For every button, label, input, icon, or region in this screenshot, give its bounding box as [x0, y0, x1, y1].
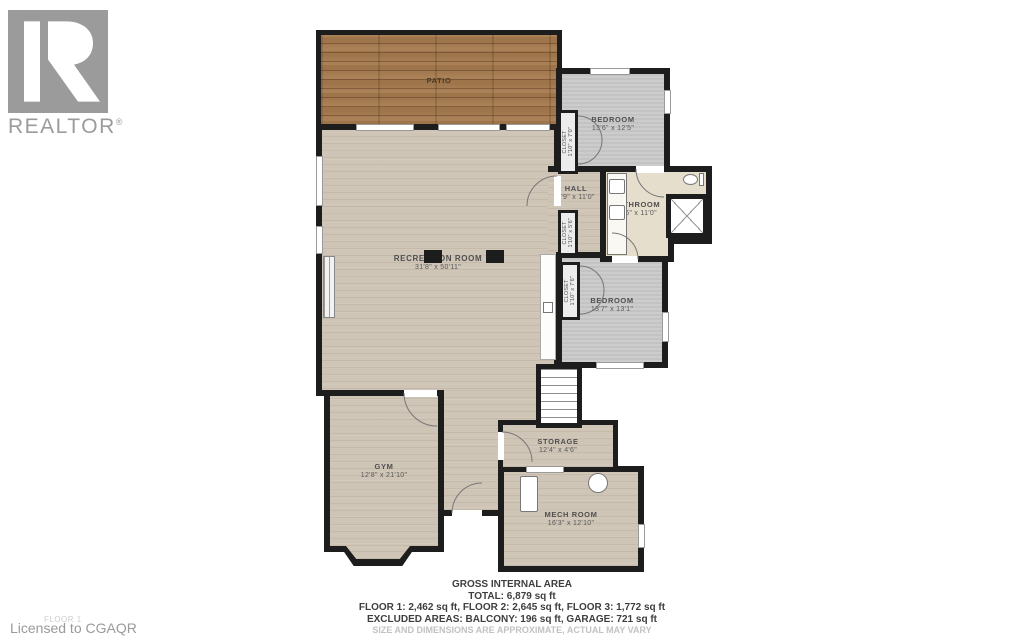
room-dims: 13'7" x 13'1" [590, 305, 633, 314]
sink-icon [609, 179, 625, 194]
window [316, 156, 323, 206]
room-dims: 31'8" x 50'11" [394, 263, 482, 272]
window [506, 124, 550, 131]
window [638, 524, 645, 548]
room-name: STORAGE [537, 437, 578, 446]
floorplan-page: { "logo": { "brand": "REALTOR", "mark": … [0, 0, 1024, 639]
room-name: MECH ROOM [545, 510, 598, 519]
closet-label: CLOSET 1'10" x 7'6" [564, 276, 576, 306]
room-label: BEDROOM 13'6" x 12'5" [591, 115, 634, 133]
wall-segment [316, 390, 330, 396]
closet-top: CLOSET 1'10" x 7'0" [558, 110, 578, 174]
room-label: BEDROOM 13'7" x 13'1" [590, 296, 633, 314]
area-summary-disclaimer: SIZE AND DIMENSIONS ARE APPROXIMATE, ACT… [0, 625, 1024, 637]
room-dims: 1'10" x 7'6" [570, 276, 576, 306]
room-name: PATIO [427, 76, 452, 85]
bar-sink-icon [543, 302, 553, 313]
floorplan-canvas: REALTOR® PATIO RECREATION ROOM 31'8" x 5… [0, 0, 1024, 639]
water-heater-icon [588, 473, 608, 493]
window [596, 362, 644, 369]
sink-icon [609, 205, 625, 220]
room-dims: 12'8" x 21'10" [361, 471, 407, 480]
realtor-logo-icon [8, 10, 108, 113]
closet-label: CLOSET 1'10" x 7'0" [562, 127, 574, 157]
window [316, 226, 323, 254]
window [438, 124, 500, 131]
closet-label: CLOSET 1'10" x 5'6" [562, 218, 574, 248]
room-name: BEDROOM [590, 296, 633, 305]
toilet-icon [683, 174, 698, 185]
room-label: MECH ROOM 16'3" x 12'10" [545, 510, 598, 528]
structural-post [424, 250, 442, 263]
gym-bay-floor [346, 546, 410, 559]
area-summary-floors: FLOOR 1: 2,462 sq ft, FLOOR 2: 2,645 sq … [0, 602, 1024, 614]
closet-hall: CLOSET 1'10" x 5'6" [558, 210, 578, 256]
room-label: PATIO [427, 76, 452, 85]
area-summary-total: TOTAL: 6,879 sq ft [0, 591, 1024, 603]
door-gap [404, 390, 437, 397]
room-dims: 13'6" x 12'5" [591, 124, 634, 133]
room-dims: 1'10" x 5'6" [568, 218, 574, 248]
realtor-wordmark: REALTOR® [8, 115, 128, 139]
door-gap [636, 166, 664, 173]
room-name: HALL [557, 184, 595, 193]
room-name: GYM [361, 462, 407, 471]
area-summary: GROSS INTERNAL AREA TOTAL: 6,879 sq ft F… [0, 579, 1024, 637]
window [356, 124, 414, 131]
room-gym: GYM 12'8" x 21'10" [324, 390, 444, 552]
stair-treads [541, 369, 577, 423]
window [664, 90, 671, 114]
door-gap [498, 432, 504, 460]
room-dims: 5'9" x 11'0" [557, 193, 595, 202]
licensed-to-watermark: Licensed to CGAQR [10, 620, 137, 636]
toilet-tank-icon [699, 173, 704, 186]
realtor-r-icon [8, 10, 108, 113]
realtor-brand-text: REALTOR [8, 115, 116, 138]
room-dims: 16'3" x 12'10" [545, 519, 598, 528]
closet-bedroom-lower: CLOSET 1'10" x 7'6" [560, 262, 580, 320]
room-label: GYM 12'8" x 21'10" [361, 462, 407, 480]
room-dims: 1'10" x 7'0" [568, 127, 574, 157]
shower-icon [666, 194, 708, 238]
area-summary-excluded: EXCLUDED AREAS: BALCONY: 196 sq ft, GARA… [0, 614, 1024, 626]
room-label: STORAGE 12'4" x 4'6" [537, 437, 578, 455]
room-patio: PATIO [316, 30, 562, 130]
structural-post [486, 250, 504, 263]
room-name: BEDROOM [591, 115, 634, 124]
window [526, 466, 564, 473]
window-bench [323, 256, 335, 318]
door-gap [612, 256, 638, 263]
door-gap [554, 176, 561, 206]
staircase [536, 364, 582, 428]
window [590, 68, 630, 75]
window [662, 312, 669, 342]
room-dims: 12'4" x 4'6" [537, 446, 578, 455]
registered-mark: ® [116, 117, 124, 127]
door-gap [452, 510, 482, 517]
area-summary-title: GROSS INTERNAL AREA [0, 579, 1024, 591]
water-tank-icon [520, 476, 538, 512]
